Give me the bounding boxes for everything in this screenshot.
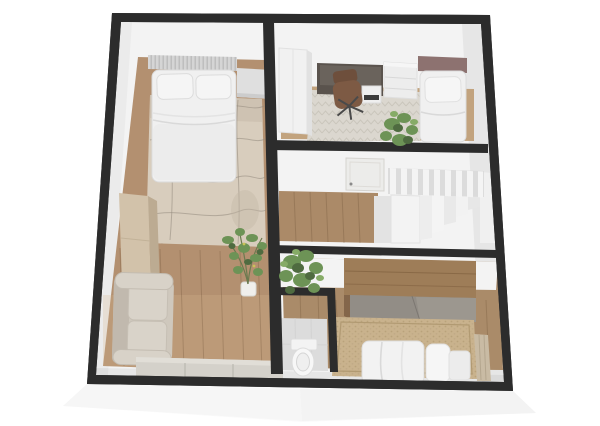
bed2-pillow bbox=[425, 76, 462, 102]
bed3-duvet bbox=[362, 341, 424, 384]
stair-railing-balusters bbox=[390, 168, 483, 198]
sofa bbox=[112, 272, 174, 366]
white-wardrobe bbox=[279, 48, 312, 136]
wood-wardrobe bbox=[344, 258, 476, 322]
bed1-pillow-right bbox=[196, 75, 231, 100]
wall-wc-top bbox=[269, 287, 335, 296]
bed3-pillow bbox=[426, 344, 450, 382]
stair-tread bbox=[420, 195, 432, 240]
bed1-headboard bbox=[148, 55, 237, 71]
floorplan-3d-render bbox=[0, 0, 600, 426]
floorplan-page bbox=[0, 0, 600, 426]
bed3-mattress-head bbox=[449, 351, 470, 380]
stair-bottom-step bbox=[391, 195, 420, 243]
plant-pot bbox=[241, 282, 256, 296]
double-bed-1 bbox=[148, 55, 237, 182]
hallway-door bbox=[346, 158, 384, 191]
desk-cabinet bbox=[362, 86, 381, 103]
stair-tread bbox=[432, 193, 444, 233]
single-bed bbox=[418, 56, 467, 142]
bed1-pillow-left bbox=[157, 73, 194, 99]
drawer-unit bbox=[384, 62, 417, 99]
room-wc bbox=[278, 318, 328, 376]
bed2-headboard bbox=[418, 56, 467, 73]
door-handle bbox=[350, 183, 353, 186]
sofa-armrest bbox=[115, 272, 173, 290]
